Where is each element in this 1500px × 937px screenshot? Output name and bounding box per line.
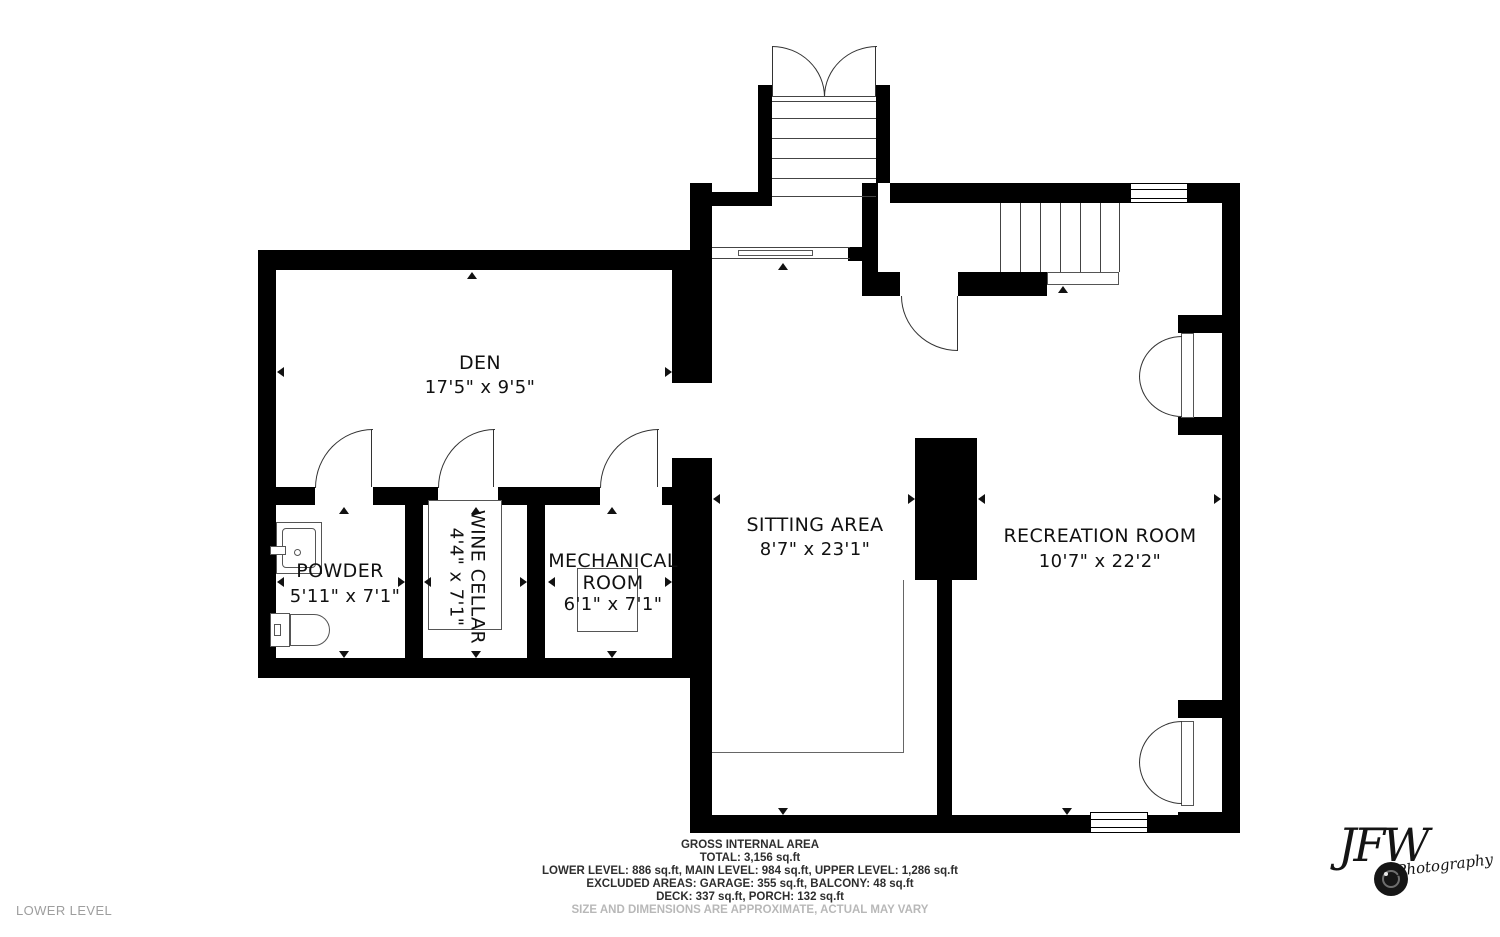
dimension-arrow <box>339 651 349 658</box>
wall <box>498 487 600 505</box>
wall <box>958 272 1047 296</box>
gross-internal-area-title: GROSS INTERNAL AREA <box>300 839 1200 852</box>
door-swing-arc <box>901 296 958 351</box>
stair-tread <box>1060 203 1061 272</box>
dimension-arrow <box>467 272 477 279</box>
dimension-arrow <box>665 367 672 377</box>
wall <box>712 192 772 206</box>
room-label-mechanical: MECHANICAL ROOM 6'1" x 7'1" <box>538 550 688 616</box>
deck-porch-areas: DECK: 337 sq.ft, PORCH: 132 sq.ft <box>300 891 1200 904</box>
door-frame <box>1181 333 1194 418</box>
dimension-arrow <box>607 507 617 514</box>
stairwell-wall <box>876 85 890 183</box>
level-areas: LOWER LEVEL: 886 sq.ft, MAIN LEVEL: 984 … <box>300 865 1200 878</box>
wall <box>1178 417 1224 435</box>
wall <box>690 815 1090 833</box>
stairwell-wall <box>758 85 772 192</box>
wall <box>405 505 423 658</box>
wall <box>862 272 900 296</box>
stair-tread <box>772 96 876 97</box>
window <box>1090 812 1148 833</box>
stair-tread <box>1119 203 1120 272</box>
wall <box>1178 812 1224 830</box>
room-dims-mechanical: 6'1" x 7'1" <box>538 594 688 616</box>
door-swing-arc <box>315 429 373 488</box>
disclaimer: SIZE AND DIMENSIONS ARE APPROXIMATE, ACT… <box>300 904 1200 917</box>
area-summary: GROSS INTERNAL AREA TOTAL: 3,156 sq.ft L… <box>300 839 1200 917</box>
window <box>1130 183 1188 203</box>
stair-tread <box>1080 203 1081 272</box>
stair-tread <box>1040 203 1041 272</box>
room-label-sitting: SITTING AREA <box>746 514 883 536</box>
door-frame <box>1181 721 1194 806</box>
floor-plan: DEN 17'5" x 9'5" POWDER 5'11" x 7'1" WIN… <box>0 0 1500 937</box>
dimension-arrow <box>1214 494 1221 504</box>
dimension-arrow <box>339 507 349 514</box>
room-dims-powder: 5'11" x 7'1" <box>290 586 401 607</box>
door-swing-arc <box>824 46 877 97</box>
stair-tread <box>772 158 876 159</box>
wall <box>848 247 864 261</box>
stair-tread <box>772 196 876 197</box>
dimension-arrow <box>424 577 431 587</box>
sliding-door <box>712 247 850 248</box>
stair-tread <box>772 101 876 102</box>
dimension-arrow <box>908 494 915 504</box>
toilet-bowl <box>290 614 330 646</box>
door-swing-arc <box>600 429 659 488</box>
wall <box>1222 183 1240 833</box>
wall <box>672 250 712 383</box>
photographer-logo: JFW Photography <box>1338 818 1498 903</box>
stair-tread <box>772 118 876 119</box>
stair-tread <box>1000 203 1001 272</box>
total-area: TOTAL: 3,156 sq.ft <box>300 852 1200 865</box>
stair-tread <box>772 178 876 179</box>
floor-label: LOWER LEVEL <box>16 903 112 918</box>
dimension-arrow <box>277 577 284 587</box>
wall <box>1178 315 1224 333</box>
dimension-arrow <box>1058 286 1068 293</box>
dimension-arrow <box>778 808 788 815</box>
wall <box>662 487 690 505</box>
dimension-arrow <box>1062 808 1072 815</box>
dimension-arrow <box>520 577 527 587</box>
wall <box>276 487 315 505</box>
room-label-wine-cellar-name: WINE CELLAR <box>467 467 489 687</box>
room-dims-wine-cellar: 4'4" x 7'1" <box>446 467 467 687</box>
door-swing-arc <box>1139 336 1182 377</box>
door-swing-arc <box>1139 721 1182 763</box>
door-swing-arc <box>772 46 825 97</box>
dimension-arrow <box>778 263 788 270</box>
dimension-arrow <box>277 367 284 377</box>
room-dims-den: 17'5" x 9'5" <box>425 377 536 398</box>
dimension-arrow <box>978 494 985 504</box>
room-label-powder: POWDER <box>296 560 383 582</box>
wall <box>258 250 712 270</box>
room-label-recreation: RECREATION ROOM <box>1003 525 1196 547</box>
area-boundary <box>712 752 904 753</box>
wall <box>890 183 1130 203</box>
stair-tread <box>772 138 876 139</box>
wall <box>690 658 712 833</box>
sink-drain <box>294 549 301 556</box>
room-dims-sitting: 8'7" x 23'1" <box>760 539 871 560</box>
sink-faucet <box>270 546 286 555</box>
sliding-door <box>712 258 850 259</box>
wall <box>937 580 952 815</box>
area-boundary <box>903 580 904 752</box>
dimension-arrow <box>713 494 720 504</box>
excluded-areas: EXCLUDED AREAS: GARAGE: 355 sq.ft, BALCO… <box>300 878 1200 891</box>
stair-tread <box>1020 203 1021 272</box>
room-label-den: DEN <box>459 352 501 374</box>
toilet-flush <box>274 624 281 636</box>
room-dims-recreation: 10'7" x 22'2" <box>1039 551 1161 572</box>
chimney-block <box>915 438 977 580</box>
door-swing-arc <box>1139 376 1182 417</box>
dimension-arrow <box>607 651 617 658</box>
door-swing-arc <box>1139 762 1182 804</box>
room-label-wine-cellar: WINE CELLAR 4'4" x 7'1" <box>446 467 489 687</box>
stair-landing <box>1047 272 1119 285</box>
stair-tread <box>1100 203 1101 272</box>
sliding-door-leaf <box>738 250 813 256</box>
wall <box>1178 700 1224 718</box>
wall <box>690 183 712 250</box>
room-label-mechanical-name: MECHANICAL ROOM <box>538 550 688 594</box>
